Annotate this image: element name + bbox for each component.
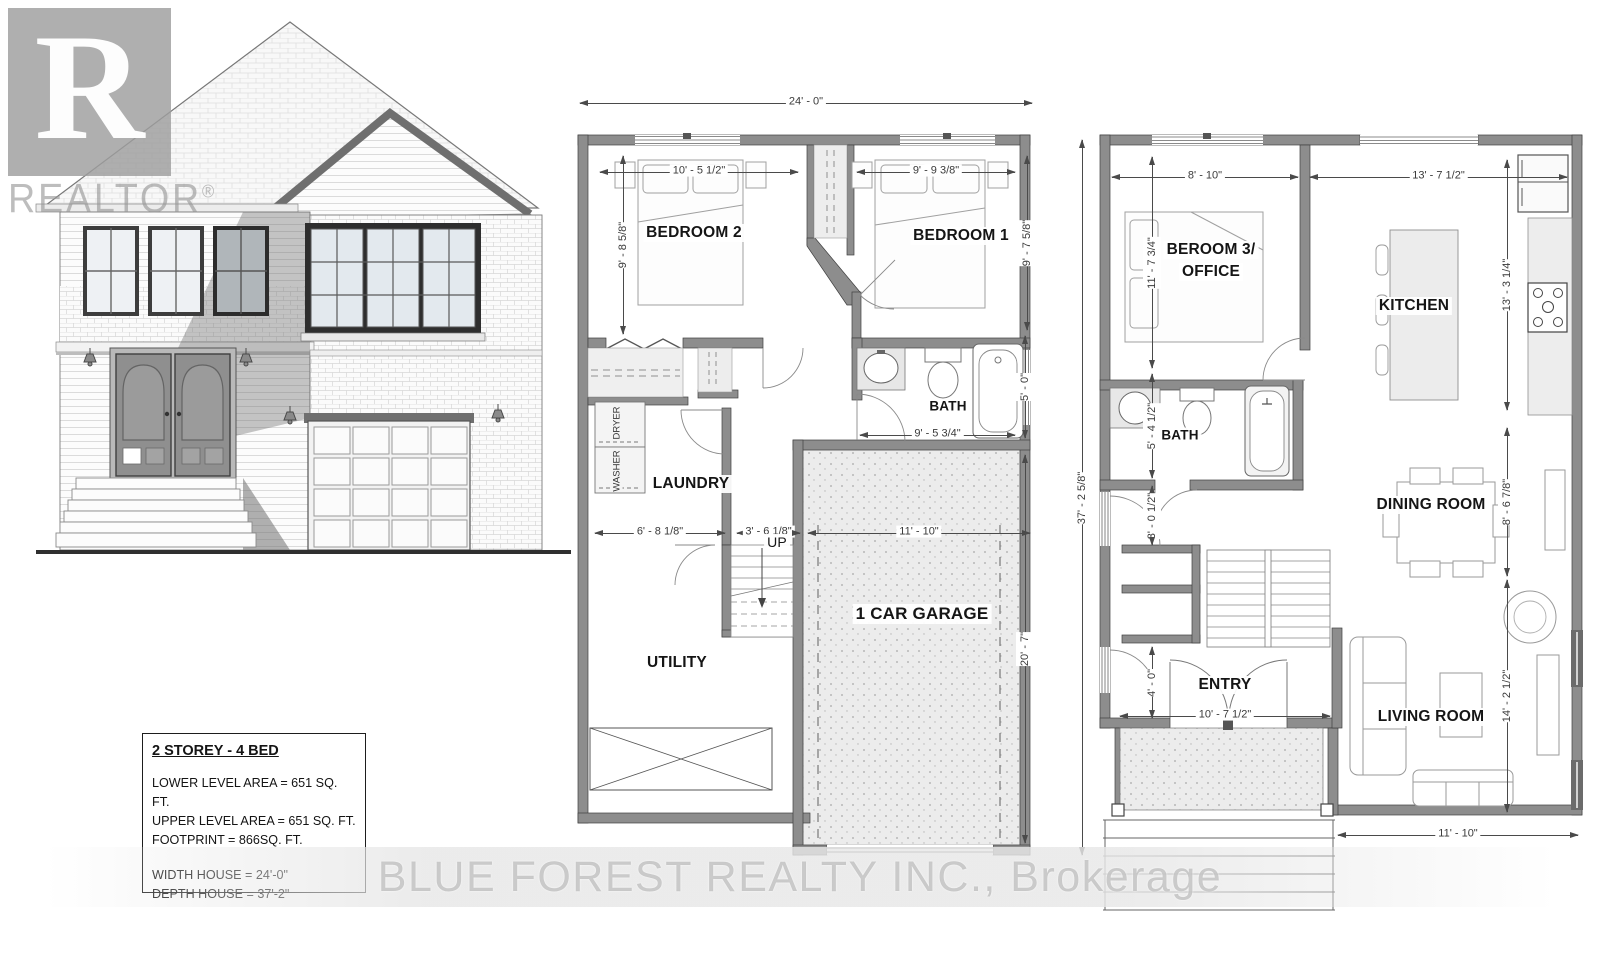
room-label-garage: 1 CAR GARAGE [853, 604, 992, 624]
info-footprint: FOOTPRINT = 866SQ. FT. [152, 831, 356, 850]
room-label-bedroom1: BEDROOM 1 [910, 227, 1012, 245]
room-label-beroom3-line2: OFFICE [1179, 263, 1243, 281]
stairs-upper [1207, 550, 1330, 647]
plan-title: 2 STOREY - 4 BED [152, 743, 356, 759]
label-washer: WASHER [612, 450, 623, 491]
dim-entry-height: 4' - 0" [1152, 647, 1153, 718]
dim-kitchen-width: 13' - 7 1/2" [1310, 177, 1567, 178]
dim-lower-overall-depth: 37' - 2 5/8" [1082, 140, 1083, 855]
room-label-dining: DINING ROOM [1374, 496, 1489, 514]
dim-bath-width: 9' - 5 3/4" [860, 435, 1015, 436]
dim-living-height: 14' - 2 1/2" [1507, 580, 1508, 812]
front-doors [110, 348, 236, 480]
room-label-bath-upper: BATH [1158, 428, 1201, 443]
garage-door [304, 413, 474, 550]
dim-bedroom2-width: 10' - 5 1/2" [600, 172, 798, 173]
dim-beroom3-width: 8' - 10" [1112, 177, 1298, 178]
room-label-entry: ENTRY [1196, 676, 1255, 694]
plan-info-box: 2 STOREY - 4 BED LOWER LEVEL AREA = 651 … [142, 733, 366, 893]
info-depth-house: DEPTH HOUSE = 37'-2" [152, 885, 356, 904]
room-label-kitchen: KITCHEN [1376, 297, 1452, 315]
dim-entry-width: 10' - 7 1/2" [1120, 716, 1330, 717]
front-steps [1103, 820, 1335, 910]
dim-garage-width: 11' - 10" [808, 533, 1030, 534]
room-label-laundry: LAUNDRY [650, 475, 733, 493]
room-label-utility: UTILITY [644, 654, 710, 672]
dim-kitchen-height: 13' - 3 1/4" [1507, 160, 1508, 410]
upper-window-right [301, 223, 485, 341]
ground-line [36, 550, 571, 554]
info-upper-area: UPPER LEVEL AREA = 651 SQ. FT. [152, 812, 356, 831]
dim-bedroom2-height: 9' - 8 5/8" [623, 156, 624, 334]
room-label-bath-lower: BATH [926, 399, 969, 414]
porch-steps [56, 478, 256, 547]
room-label-living: LIVING ROOM [1375, 708, 1487, 726]
dim-upper-bath-height: 5' - 4 1/2" [1152, 374, 1153, 478]
dim-beroom3-height: 11' - 7 3/4" [1152, 157, 1153, 368]
dim-bedroom1-width: 9' - 9 3/8" [857, 172, 1015, 173]
dim-dining-height: 8' - 6 7/8" [1507, 428, 1508, 576]
house-elevation [28, 8, 573, 558]
upper-windows-left [85, 228, 267, 314]
dim-bedroom1-height: 9' - 7 5/8" [1027, 156, 1028, 330]
room-label-bedroom2: BEDROOM 2 [643, 224, 745, 242]
info-width-house: WIDTH HOUSE = 24'-0" [152, 866, 356, 885]
kitchen-fixtures [1376, 155, 1572, 415]
room-label-beroom3-line1: BEROOM 3/ [1164, 241, 1259, 259]
dim-garage-height: 20' - 7" [1025, 455, 1026, 843]
dim-living-width: 11' - 10" [1338, 835, 1578, 836]
dim-laundry-width: 6' - 8 1/8" [595, 533, 725, 534]
stairs-lower [731, 545, 793, 637]
info-lower-area: LOWER LEVEL AREA = 651 SQ. FT. [152, 774, 356, 812]
dim-lower-overall-width: 24' - 0" [580, 103, 1032, 104]
room-label-up: UP [764, 534, 790, 550]
bath-fixtures [857, 344, 1023, 438]
dim-upper-hall-height: 3' - 0 1/2" [1152, 486, 1153, 545]
floor-plan-sheet: R REALTOR® [0, 0, 1600, 954]
dim-bath-height: 5' - 0" [1025, 336, 1026, 438]
label-dryer: DRYER [612, 406, 623, 439]
